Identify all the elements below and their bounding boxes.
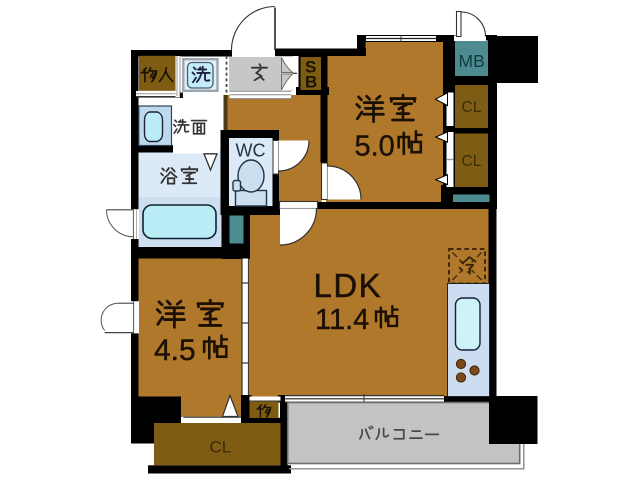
svg-text:CL: CL [462, 99, 482, 116]
svg-text:4.5: 4.5 [154, 334, 196, 367]
svg-text:CL: CL [210, 438, 232, 457]
svg-text:B: B [305, 73, 317, 92]
svg-text:MB: MB [459, 51, 485, 71]
svg-text:5.0: 5.0 [355, 131, 395, 163]
svg-text:11.4: 11.4 [315, 304, 369, 336]
svg-text:CL: CL [462, 153, 482, 170]
svg-text:LDK: LDK [314, 267, 383, 304]
svg-text:WC: WC [236, 141, 266, 161]
